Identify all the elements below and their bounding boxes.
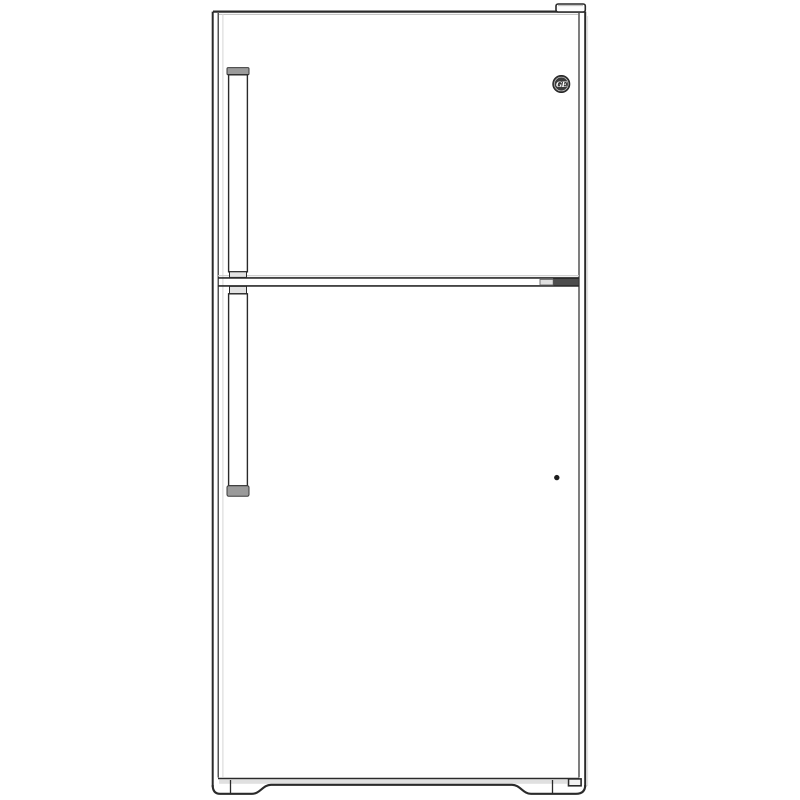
corner-notch — [569, 779, 582, 786]
kickplate-outline — [213, 785, 586, 794]
fresh-food-handle-bottom-cap — [227, 486, 249, 496]
center-door-hinge-detail — [540, 279, 579, 286]
freezer-handle-bar — [229, 75, 248, 272]
fresh-food-door-handle — [227, 286, 249, 496]
door-dot-detail — [554, 475, 559, 480]
base-kickplate — [213, 779, 586, 794]
center-hinge-light-tab — [540, 279, 553, 285]
ge-monogram-icon: GE — [553, 75, 570, 92]
freezer-handle-top-cap — [227, 68, 249, 75]
fresh-food-handle-top-mount — [230, 286, 247, 293]
under-door-shadow-band — [219, 780, 567, 784]
freezer-door — [218, 276, 579, 278]
freezer-door-handle — [227, 68, 249, 278]
cabinet-outline — [213, 12, 588, 787]
fresh-food-handle-bar — [229, 294, 248, 486]
refrigerator-product-image: GE — [0, 0, 800, 800]
ge-logo-text: GE — [556, 80, 568, 89]
freezer-handle-bottom-mount — [230, 272, 247, 278]
center-hinge-dark-block — [554, 279, 580, 286]
top-hinge-cover — [556, 4, 585, 12]
refrigerator-line-drawing: GE — [0, 0, 800, 800]
